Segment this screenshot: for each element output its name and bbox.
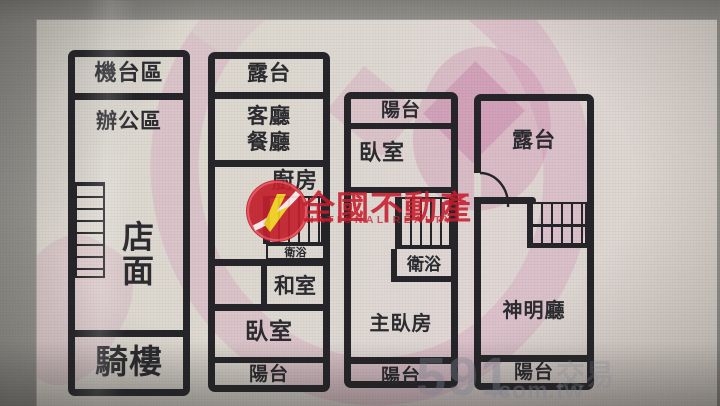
wall-divider <box>351 123 451 129</box>
room-label-terrace: 露台 <box>215 62 323 85</box>
brand-logo-icon <box>244 178 310 244</box>
room-label-bathroom: 衛浴 <box>266 244 323 260</box>
room-label-terrace: 露台 <box>481 129 587 152</box>
floorplan-unit-3: 陽台 臥室 衛浴 主臥房 陽台 <box>344 92 458 388</box>
room-label-tatami: 和室 <box>261 266 323 304</box>
wall-divider <box>215 357 323 363</box>
room-label-bedroom: 臥室 <box>351 141 451 165</box>
room-label-bathroom: 衛浴 <box>391 249 451 282</box>
room-label-bedroom: 臥室 <box>215 319 323 344</box>
floorplan-photo: 機台區 辦公區 店面 騎樓 露台 客廳 餐廳 廚房 衛浴 和室 臥室 陽台 陽台… <box>0 0 720 406</box>
wall-divider <box>215 92 323 99</box>
room-label-balcony-top: 陽台 <box>351 101 451 122</box>
wall-divider <box>215 259 323 266</box>
room-label-living: 客廳 <box>215 105 323 128</box>
wall-divider <box>215 304 323 311</box>
staircase-symbol <box>527 202 587 248</box>
site-watermark-domain: .com.tw <box>491 377 584 404</box>
room-label-balcony: 陽台 <box>215 365 323 386</box>
room-label-worship-hall: 神明廳 <box>481 300 587 322</box>
room-label-master-bedroom: 主臥房 <box>351 313 451 335</box>
brand-subtitle-watermark: NATIONAL REALTY <box>306 214 454 226</box>
wall-divider <box>215 160 323 167</box>
room-label-dining: 餐廳 <box>215 131 323 154</box>
stair-landing-line <box>531 224 585 227</box>
